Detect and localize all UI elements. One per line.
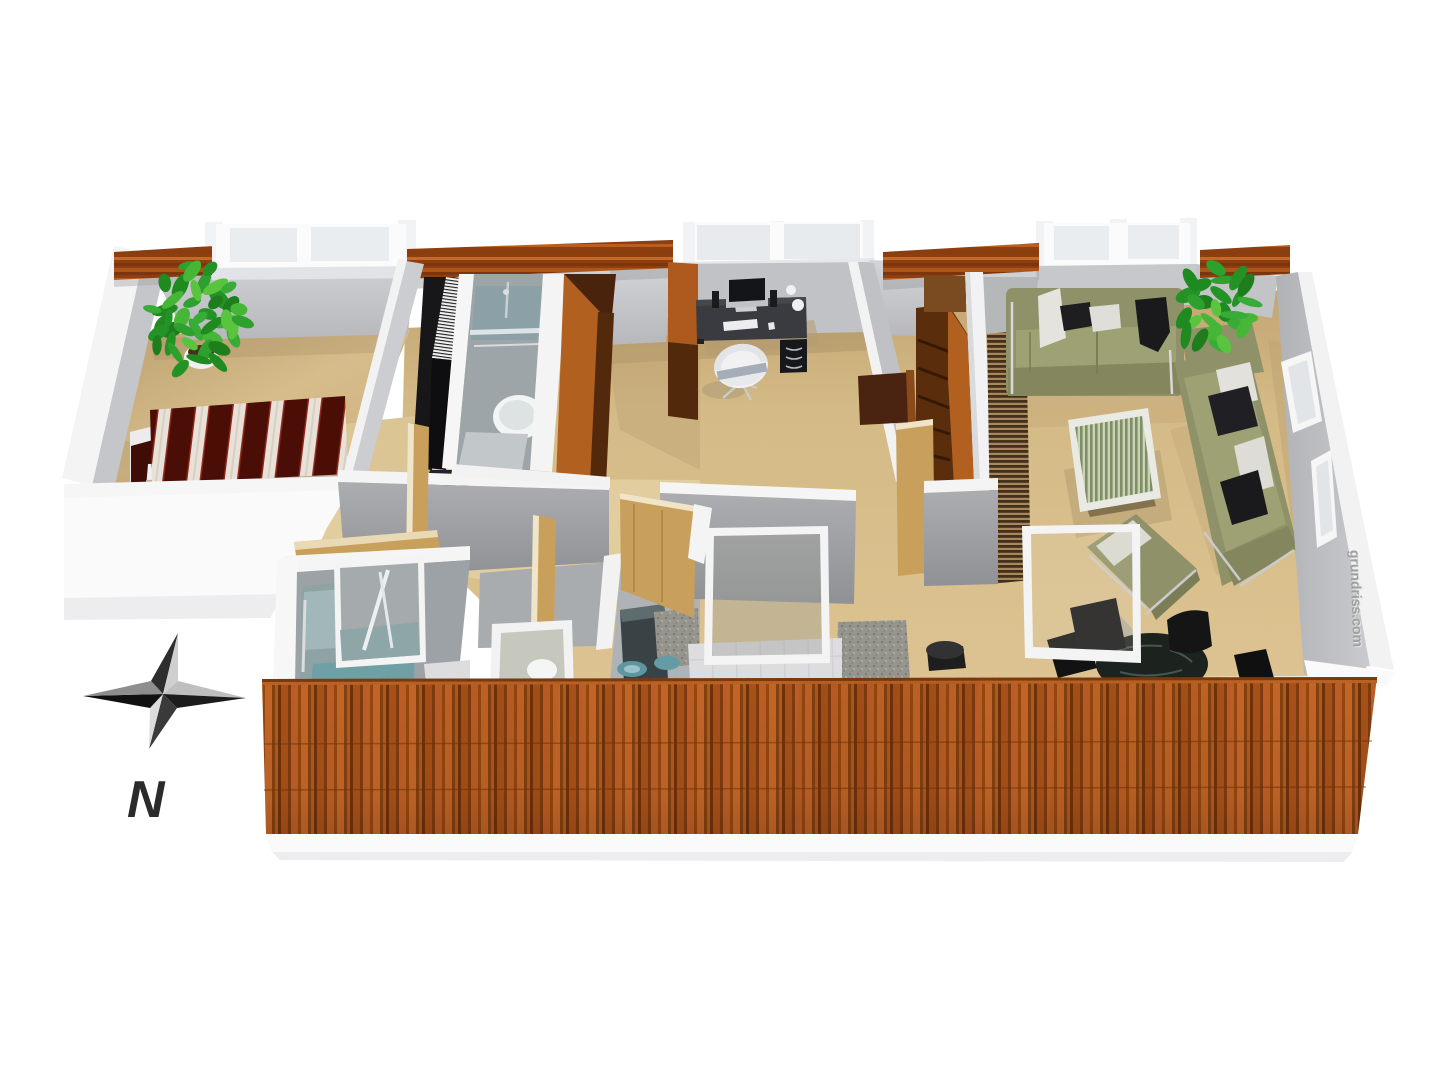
svg-text:N: N: [127, 771, 166, 829]
svg-text:grundriss.com: grundriss.com: [1347, 550, 1366, 648]
